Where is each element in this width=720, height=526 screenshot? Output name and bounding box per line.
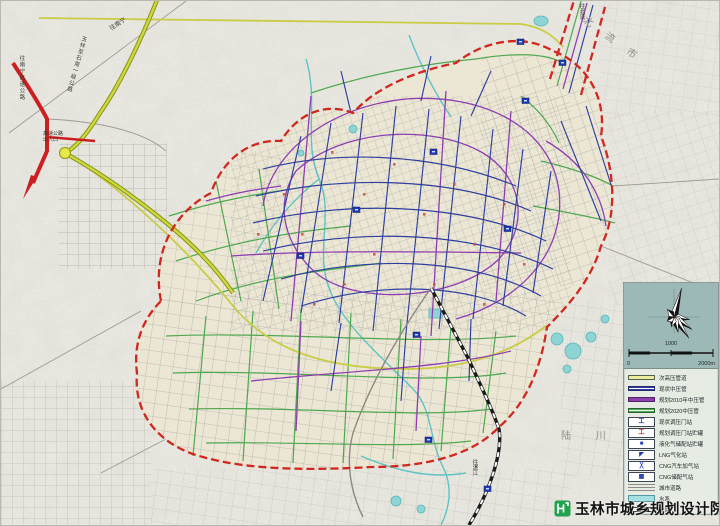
- scale-mid-label: 1000: [624, 341, 718, 347]
- legend-row: ╳CNG汽车加气站: [628, 460, 716, 471]
- legend-row: ◤LNG气化站: [628, 449, 716, 460]
- legend-label: 现状调压门站: [659, 417, 692, 425]
- compass-box: 1000 0 2000m: [624, 283, 718, 369]
- legend-symbol-line-green: [628, 407, 655, 415]
- legend-row: ■液化气储配站贮罐: [628, 438, 716, 449]
- legend-label: 规划调压门站贮罐: [659, 428, 703, 436]
- legend-label: CNG汽车加气站: [659, 461, 699, 469]
- compass-rose-icon: [624, 283, 718, 341]
- highway-interchange: [60, 148, 71, 159]
- legend-symbol-box-gate2: 工: [628, 429, 655, 437]
- legend-row: ▦CNG储配气站: [628, 471, 716, 482]
- legend-label: 城市道路: [659, 483, 681, 491]
- legend-label: 现状中压管: [659, 384, 687, 392]
- scale-bar: 1000 0 2000m: [624, 341, 718, 368]
- legend-row: 城市道路: [628, 482, 716, 493]
- scale-max-label: 2000m: [698, 361, 715, 367]
- planning-map-page: 北 流 市陆 川 县往南宁高速公路 出入口往北流往湛江往南宁高速公路玉林至石南一…: [0, 0, 720, 526]
- legend-rows: 次高压管道现状中压管规划2010年中压管规划2020中压管工现状调压门站工规划调…: [624, 369, 718, 515]
- legend-label: LNG气化站: [659, 450, 687, 458]
- institute-logo-icon: [554, 500, 571, 517]
- legend-row: 规划2020中压管: [628, 405, 716, 416]
- legend-label: 规划2010年中压管: [659, 395, 704, 403]
- legend-row: 工现状调压门站: [628, 416, 716, 427]
- legend-symbol-line-blue: [628, 385, 655, 393]
- legend-symbol-line-yellow: [628, 374, 655, 382]
- legend-row: 现状中压管: [628, 383, 716, 394]
- legend-symbol-box-gate1: 工: [628, 418, 655, 426]
- legend-label: CNG储配气站: [659, 472, 693, 480]
- legend-symbol-line-purple: [628, 396, 655, 404]
- legend-label: 规划2020中压管: [659, 406, 699, 414]
- legend-symbol-box-cng2: ▦: [628, 473, 655, 481]
- legend-symbol-road: [628, 484, 655, 492]
- legend-label: 次高压管道: [659, 373, 687, 381]
- credit: 玉林市城乡规划设计院: [554, 498, 720, 519]
- legend-panel: 1000 0 2000m 次高压管道现状中压管规划2010年中压管规划2020中…: [623, 282, 719, 515]
- city-gas-plan-map: [1, 1, 720, 526]
- institute-name: 玉林市城乡规划设计院: [575, 498, 720, 519]
- scale-zero-label: 0: [627, 361, 630, 367]
- legend-row: 工规划调压门站贮罐: [628, 427, 716, 438]
- legend-row: 规划2010年中压管: [628, 394, 716, 405]
- legend-row: 次高压管道: [628, 372, 716, 383]
- legend-label: 液化气储配站贮罐: [659, 439, 703, 447]
- legend-symbol-box-tank: ■: [628, 440, 655, 448]
- legend-symbol-box-lng: ◤: [628, 451, 655, 459]
- legend-symbol-box-cng1: ╳: [628, 462, 655, 470]
